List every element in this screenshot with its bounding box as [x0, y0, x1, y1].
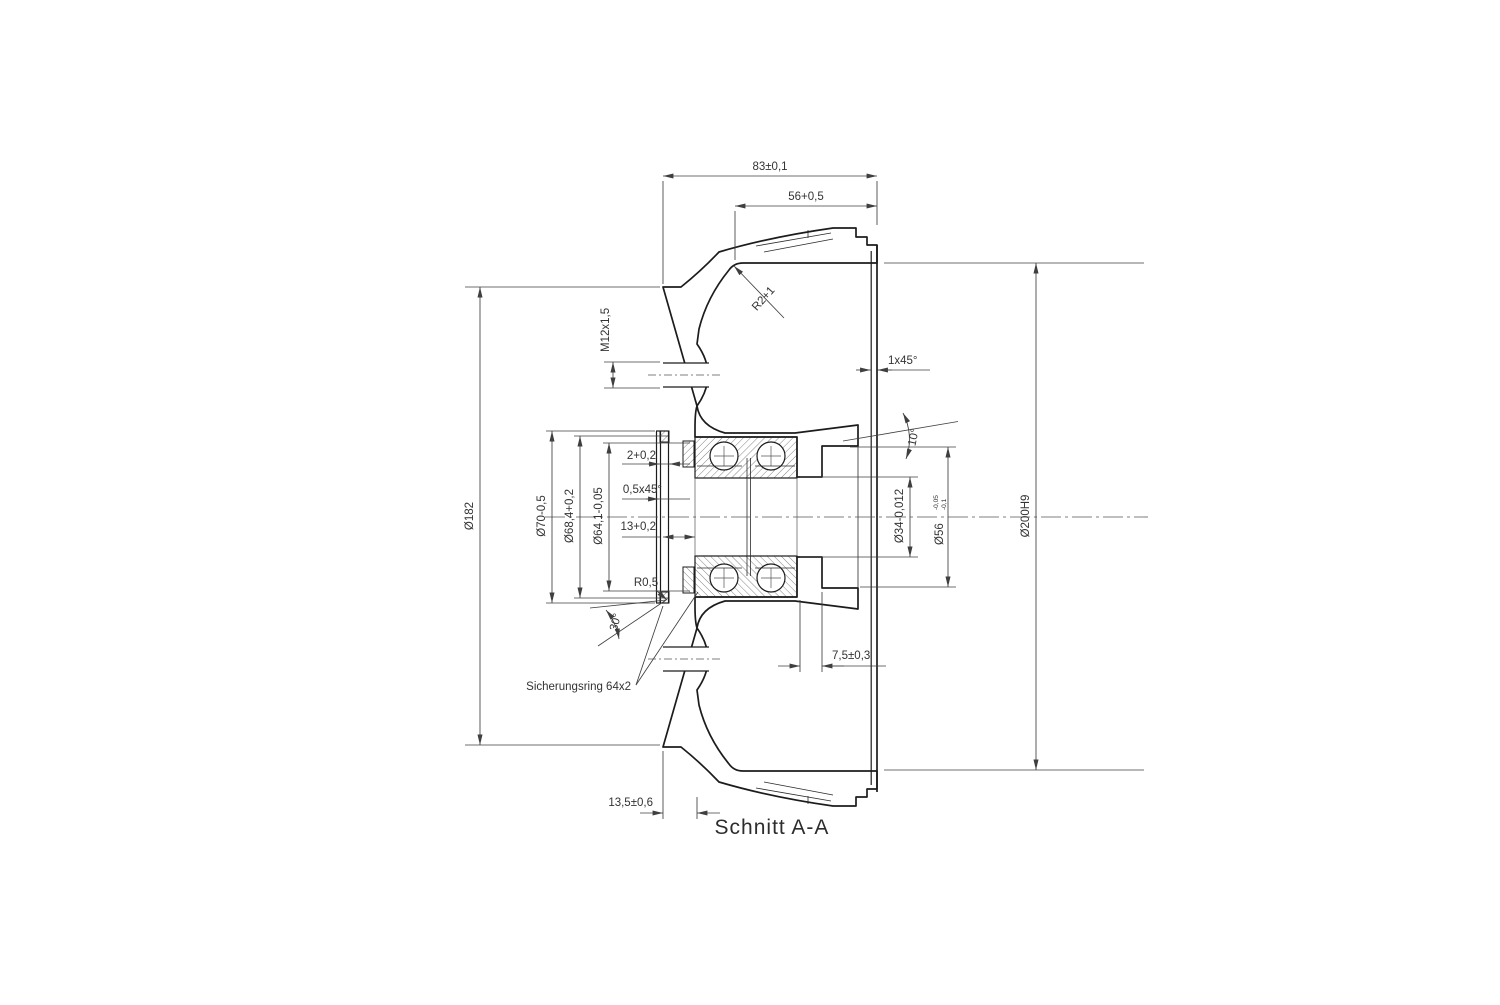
section-title: Schnitt A-A [715, 816, 830, 839]
dim-bore-dia-label: Ø34-0,012 [894, 489, 906, 543]
dim-recess-tol-lower: -0,1 [941, 498, 948, 510]
drawing-page: 83±0,1 56+0,5 R2+1 M12x1,5 1x45° 10° 2+0… [0, 0, 1500, 1000]
note-circlip-label: Sicherungsring 64x2 [526, 681, 631, 693]
circlip-section [660, 431, 669, 442]
dim-total-width-label: 83±0,1 [752, 161, 787, 173]
dim-recess-dia-label: Ø56 [934, 523, 946, 545]
dim-groove-dia-label: Ø68,4+0,2 [564, 489, 576, 543]
dim-rim-chamfer-label: 1x45° [888, 355, 918, 367]
dim-flange-width-label: 13,5±0,6 [608, 797, 653, 809]
dim-drum-depth-label: 56+0,5 [788, 191, 824, 203]
seal-ring [683, 441, 694, 467]
dim-recess-tol-upper: -0,05 [933, 495, 940, 510]
dim-thread-label: M12x1,5 [600, 308, 612, 352]
dim-recess-depth-label: 7,5±0,3 [832, 650, 870, 662]
dim-seat-dia-label: Ø64,1-0,05 [593, 487, 605, 545]
dim-flange-dia-label: Ø182 [464, 502, 476, 530]
paper-background [0, 0, 1500, 1000]
dim-hub-dia-label: Ø70-0,5 [536, 495, 548, 537]
dim-seat-depth-label: 13+0,2 [621, 521, 657, 533]
dim-fillet-label: R0,5 [634, 577, 658, 589]
section-drawing: 83±0,1 56+0,5 R2+1 M12x1,5 1x45° 10° 2+0… [0, 0, 1500, 1000]
dim-groove-width-label: 2+0,2 [627, 450, 656, 462]
dim-drum-dia-label: Ø200H9 [1020, 495, 1032, 538]
dim-edge-chamfer-label: 0,5x45° [623, 484, 662, 496]
